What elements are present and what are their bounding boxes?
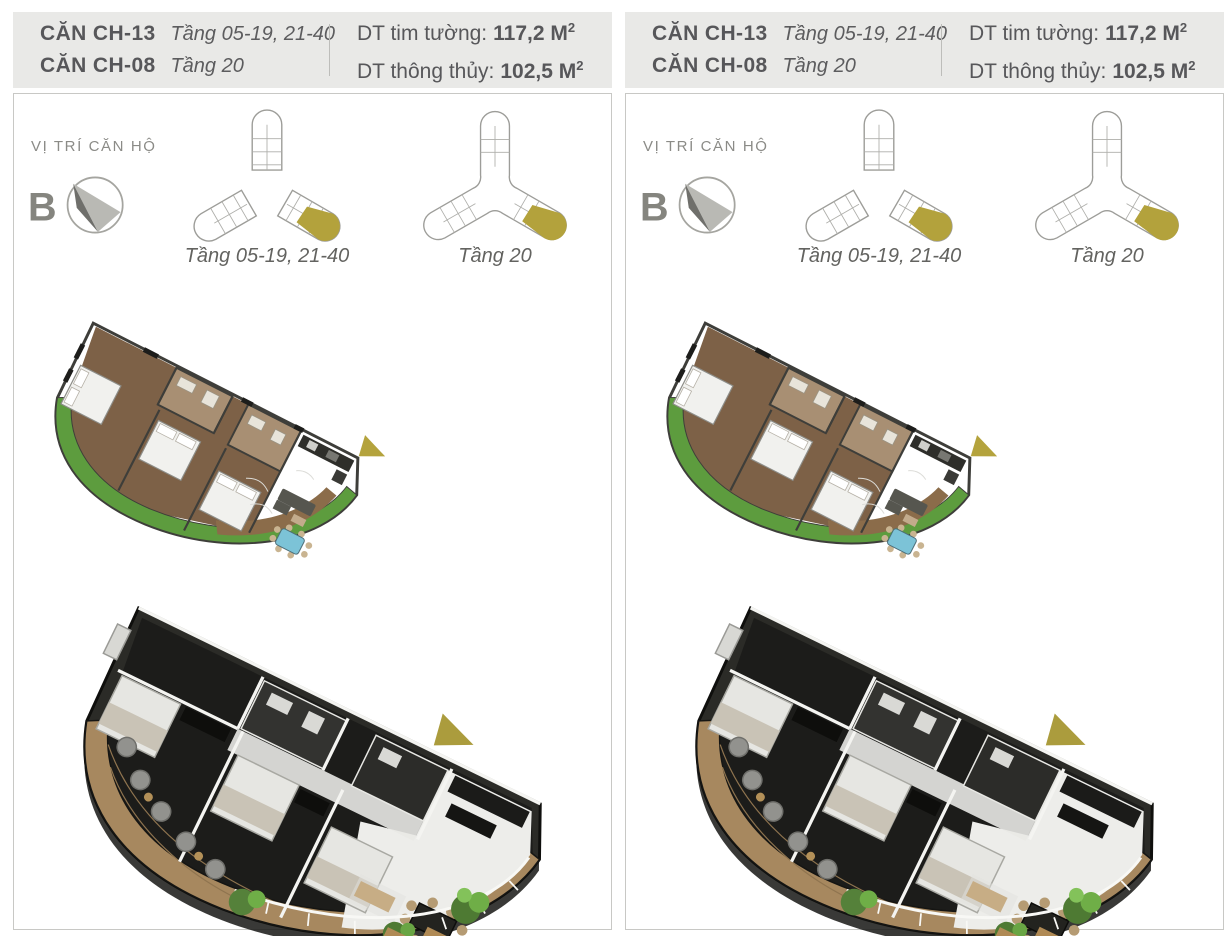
unit-row: CĂN CH-08 Tầng 20 — [40, 50, 329, 82]
keyplan-label-typical: Tầng 05-19, 21-40 — [772, 245, 986, 268]
area-label: DT tim tường: — [969, 22, 1099, 45]
keyplan-floor-20 — [410, 102, 580, 252]
unit-row: CĂN CH-13 Tầng 05-19, 21-40 — [40, 18, 329, 50]
unit-id-block: CĂN CH-13 Tầng 05-19, 21-40 CĂN CH-08 Tầ… — [625, 18, 941, 82]
area-value: 102,5 M2 — [500, 60, 583, 83]
panel-body: VỊ TRÍ CĂN HỘ B — [13, 93, 612, 930]
unit-name: CĂN CH-13 — [40, 22, 156, 45]
floorplan-2d — [656, 274, 1022, 569]
unit-name: CĂN CH-08 — [40, 54, 156, 77]
entrance-arrow-icon — [967, 435, 1001, 467]
floorplan-2d — [44, 274, 410, 569]
unit-panel-right: CĂN CH-13 Tầng 05-19, 21-40 CĂN CH-08 Tầ… — [625, 0, 1224, 937]
area-row: DT tim tường:117,2 M2 — [969, 12, 1224, 50]
entrance-arrow-icon — [355, 435, 389, 467]
compass-letter: B — [640, 186, 669, 230]
area-value: 117,2 M2 — [493, 22, 575, 45]
area-label: DT tim tường: — [357, 22, 487, 45]
panel-body: VỊ TRÍ CĂN HỘ B — [625, 93, 1224, 930]
unit-floors: Tầng 05-19, 21-40 — [782, 23, 947, 45]
unit-floors: Tầng 05-19, 21-40 — [170, 23, 335, 45]
area-label: DT thông thủy: — [969, 60, 1106, 83]
area-value: 117,2 M2 — [1105, 22, 1187, 45]
area-row: DT thông thủy:102,5 M2 — [969, 50, 1224, 88]
area-row: DT thông thủy:102,5 M2 — [357, 50, 612, 88]
unit-floors: Tầng 20 — [170, 55, 243, 77]
area-label: DT thông thủy: — [357, 60, 494, 83]
fridge — [331, 469, 347, 485]
location-label: VỊ TRÍ CĂN HỘ — [31, 138, 157, 155]
unit-name: CĂN CH-13 — [652, 22, 768, 45]
unit-panel-left: CĂN CH-13 Tầng 05-19, 21-40 CĂN CH-08 Tầ… — [13, 0, 612, 937]
unit-floors: Tầng 20 — [782, 55, 855, 77]
unit-row: CĂN CH-13 Tầng 05-19, 21-40 — [652, 18, 941, 50]
keyplan-label-20: Tầng 20 — [406, 245, 584, 268]
keyplan-typical-floors — [180, 102, 354, 252]
panel-header: CĂN CH-13 Tầng 05-19, 21-40 CĂN CH-08 Tầ… — [625, 12, 1224, 88]
keyplan-floor-20 — [1022, 102, 1192, 252]
location-label: VỊ TRÍ CĂN HỘ — [643, 138, 769, 155]
panel-header: CĂN CH-13 Tầng 05-19, 21-40 CĂN CH-08 Tầ… — [13, 12, 612, 88]
compass-icon: B — [28, 166, 134, 244]
floorplan-3d — [648, 532, 1228, 936]
floorplan-3d — [36, 532, 616, 936]
unit-row: CĂN CH-08 Tầng 20 — [652, 50, 941, 82]
fridge — [943, 469, 959, 485]
area-block: DT tim tường:117,2 M2 DT thông thủy:102,… — [942, 12, 1224, 88]
keyplan-typical-floors — [792, 102, 966, 252]
compass-icon: B — [640, 166, 746, 244]
unit-name: CĂN CH-08 — [652, 54, 768, 77]
area-row: DT tim tường:117,2 M2 — [357, 12, 612, 50]
area-value: 102,5 M2 — [1112, 60, 1195, 83]
compass-letter: B — [28, 186, 57, 230]
keyplan-label-typical: Tầng 05-19, 21-40 — [160, 245, 374, 268]
area-block: DT tim tường:117,2 M2 DT thông thủy:102,… — [330, 12, 612, 88]
keyplan-label-20: Tầng 20 — [1018, 245, 1196, 268]
unit-id-block: CĂN CH-13 Tầng 05-19, 21-40 CĂN CH-08 Tầ… — [13, 18, 329, 82]
